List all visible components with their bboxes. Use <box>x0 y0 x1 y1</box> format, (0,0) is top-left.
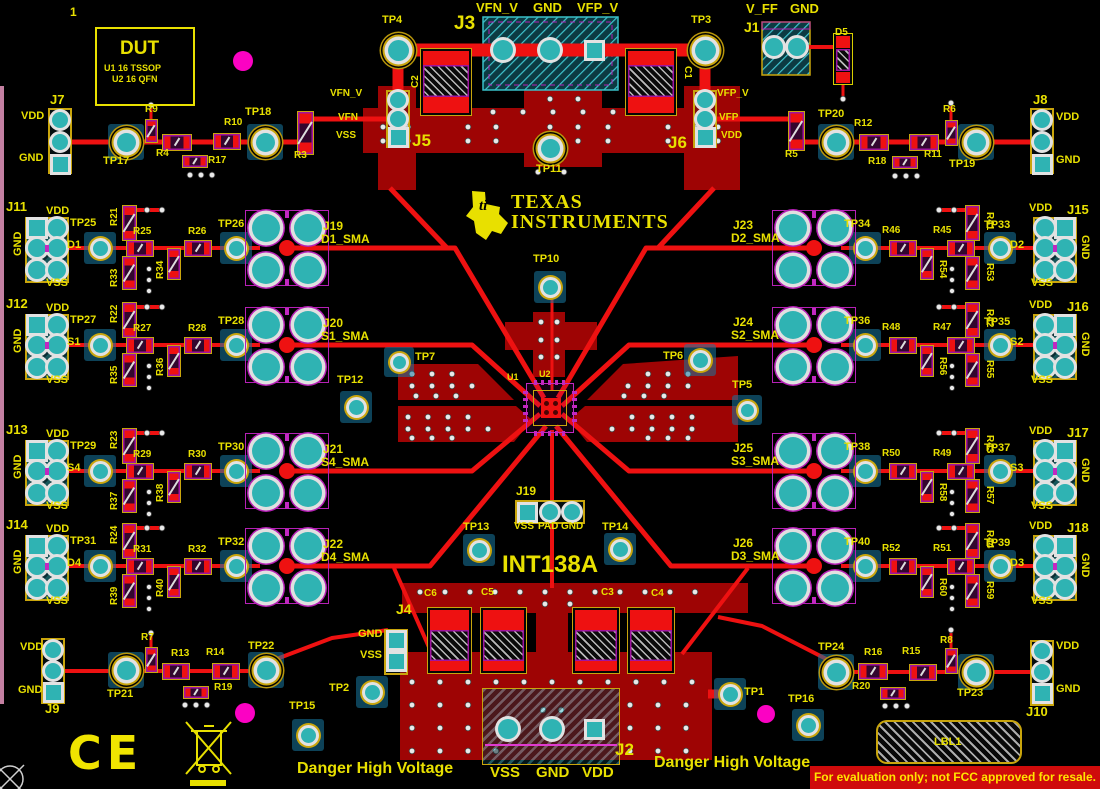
pcb-layout-image: For evaluation only; not FCC approved fo… <box>0 0 1100 789</box>
markings-layer: ti <box>0 0 1100 789</box>
ti-logo-letters: ti <box>479 198 488 214</box>
weee-bin-icon <box>186 722 231 786</box>
fiducial-target-icon <box>0 765 24 789</box>
ti-logo-icon: ti <box>466 191 508 240</box>
